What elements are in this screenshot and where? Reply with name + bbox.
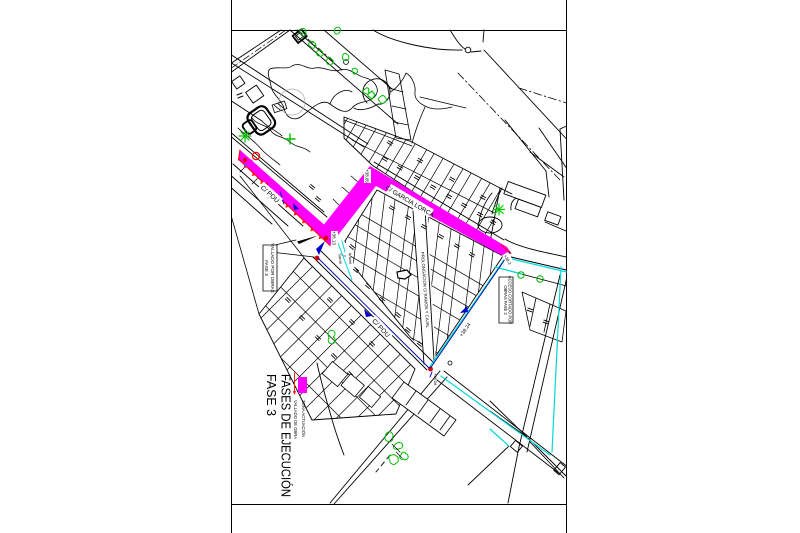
svg-text:OBRAS FASE 3: OBRAS FASE 3 [503, 285, 508, 315]
svg-text:FASE 3: FASE 3 [264, 374, 278, 416]
svg-text:FASE 3: FASE 3 [264, 260, 269, 276]
svg-text:ZONA ACTUACIÓN: ZONA ACTUACIÓN [301, 400, 306, 437]
svg-text:FASES DE EJECUCIÓN: FASES DE EJECUCIÓN [279, 374, 294, 497]
svg-text:+38.05: +38.05 [365, 169, 370, 183]
svg-text:VALLADO POR OBRAS: VALLADO POR OBRAS [270, 243, 275, 292]
svg-text:+38.13: +38.13 [332, 231, 337, 245]
svg-text:Sarrió: Sarrió [338, 253, 344, 265]
svg-text:VALLADO DE OBRA: VALLADO DE OBRA [293, 400, 298, 439]
svg-text:+38.08: +38.08 [433, 373, 438, 386]
